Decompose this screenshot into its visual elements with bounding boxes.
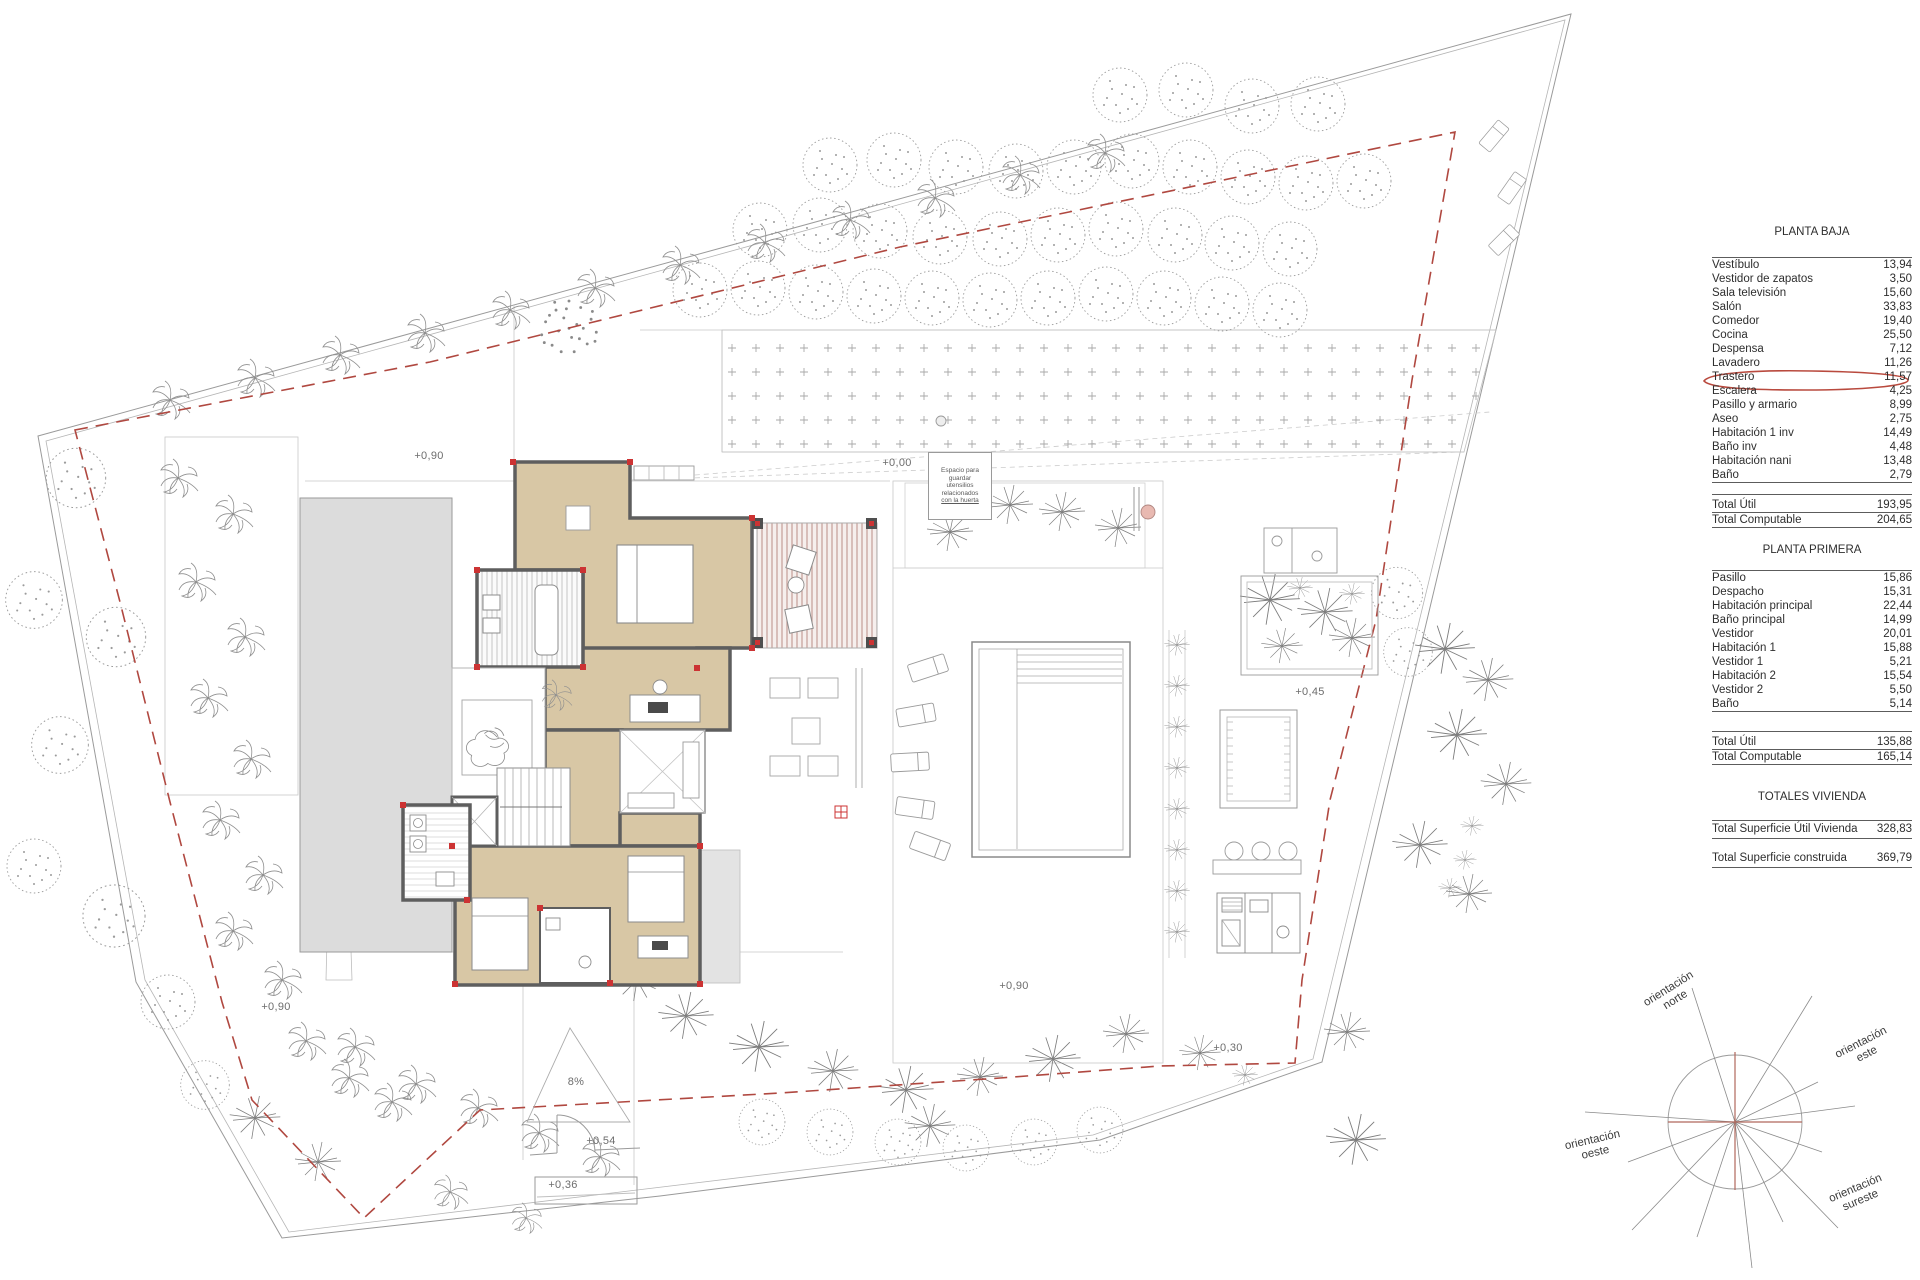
total-value: 369,79 <box>1877 850 1912 867</box>
table-row: Habitación 1 15,88 <box>1712 641 1912 655</box>
table-row: Escalera 4,25 <box>1712 384 1912 398</box>
planta-primera-totals: Total Útil 135,88 Total Computable 165,1… <box>1712 731 1912 765</box>
planta-primera-title: PLANTA PRIMERA <box>1712 543 1912 557</box>
total-row: Total Computable 165,14 <box>1712 750 1912 765</box>
garden-square <box>1241 576 1378 675</box>
room-area: 20,01 <box>1883 627 1912 641</box>
level-label-garden-east: +0,45 <box>1295 686 1324 698</box>
table-row: Vestidor 20,01 <box>1712 627 1912 641</box>
room-label: Salón <box>1712 300 1741 314</box>
room-area: 4,25 <box>1890 384 1912 398</box>
ramp <box>527 1028 630 1122</box>
total-row: Total Superficie Útil Vivienda 328,83 <box>1712 820 1912 839</box>
room-area: 25,50 <box>1883 328 1912 342</box>
note-line: relacionados <box>929 490 991 498</box>
room-area: 19,40 <box>1883 314 1912 328</box>
level-label-terrace-top: +0,90 <box>414 450 443 462</box>
room-label: Vestidor de zapatos <box>1712 272 1813 286</box>
table-row: Salón 33,83 <box>1712 300 1912 314</box>
laundry-room <box>403 805 470 900</box>
table-row: Baño principal 14,99 <box>1712 613 1912 627</box>
room-area: 15,86 <box>1883 571 1912 585</box>
table-row: Lavadero 11,26 <box>1712 356 1912 370</box>
table-row: Baño inv 4,48 <box>1712 440 1912 454</box>
total-value: 328,83 <box>1877 821 1912 838</box>
room-area: 11,57 <box>1884 370 1912 384</box>
room-label: Despensa <box>1712 342 1764 356</box>
table-planta-baja: PLANTA BAJA Vestíbulo 13,94 Vestidor de … <box>1712 225 1912 483</box>
site-plan-sheet: +0,90 +0,00 +0,90 +0,90 +0,45 +0,30 +0,5… <box>0 0 1920 1280</box>
outdoor-kitchen <box>1217 893 1300 953</box>
site-plan-drawing <box>0 0 1920 1280</box>
room-area: 5,50 <box>1890 683 1912 697</box>
room-area: 5,14 <box>1890 697 1912 711</box>
pool-loungers <box>891 654 951 861</box>
level-label-pool-deck: +0,90 <box>999 980 1028 992</box>
room-area: 11,26 <box>1884 356 1912 370</box>
table-row: Habitación nani 13,48 <box>1712 454 1912 468</box>
room-area: 15,54 <box>1883 669 1912 683</box>
room-label: Trastero <box>1712 370 1754 384</box>
planta-baja-title: PLANTA BAJA <box>1712 225 1912 239</box>
room-label: Vestidor 2 <box>1712 683 1763 697</box>
table-row: Despacho 15,31 <box>1712 585 1912 599</box>
total-value: 204,65 <box>1877 513 1912 527</box>
total-value: 193,95 <box>1877 498 1912 512</box>
note-line: utensilios <box>929 482 991 490</box>
room-label: Habitación 1 <box>1712 641 1776 655</box>
table-row: Habitación principal 22,44 <box>1712 599 1912 613</box>
room-label: Habitación nani <box>1712 454 1791 468</box>
room-label: Habitación 1 inv <box>1712 426 1794 440</box>
outdoor-lounge <box>770 668 862 788</box>
room-area: 33,83 <box>1883 300 1912 314</box>
room-label: Baño principal <box>1712 613 1785 627</box>
level-label-garden-south: +0,30 <box>1213 1042 1242 1054</box>
table-planta-primera: PLANTA PRIMERA Pasillo 15,86 Despacho 15… <box>1712 543 1912 712</box>
gate <box>530 1115 640 1204</box>
room-label: Lavadero <box>1712 356 1760 370</box>
table-totales-vivienda: TOTALES VIVIENDA Total Superficie Útil V… <box>1712 790 1912 868</box>
total-value: 165,14 <box>1877 750 1912 764</box>
level-label-entry: +0,00 <box>882 457 911 469</box>
planta-baja-totals: Total Útil 193,95 Total Computable 204,6… <box>1712 494 1912 528</box>
room-label: Cocina <box>1712 328 1748 342</box>
room-label: Vestíbulo <box>1712 258 1759 272</box>
table-row: Habitación 2 15,54 <box>1712 669 1912 683</box>
room-area: 2,79 <box>1890 468 1912 482</box>
room-label: Baño inv <box>1712 440 1757 454</box>
corner-chairs <box>1479 120 1527 256</box>
total-row: Total Útil 135,88 <box>1712 735 1912 750</box>
room-area: 8,99 <box>1890 398 1912 412</box>
room-label: Escalera <box>1712 384 1757 398</box>
total-label: Total Superficie Útil Vivienda <box>1712 821 1858 838</box>
room-label: Vestidor 1 <box>1712 655 1763 669</box>
shower-circle <box>1141 505 1155 519</box>
total-label: Total Superficie construida <box>1712 850 1847 867</box>
crop-field <box>722 330 1496 452</box>
room-label: Habitación 2 <box>1712 669 1776 683</box>
garden-note-box: Espacio paraguardarutensiliosrelacionado… <box>928 452 992 520</box>
covered-terrace <box>752 518 877 648</box>
total-label: Total Útil <box>1712 735 1756 749</box>
total-value: 135,88 <box>1877 735 1912 749</box>
note-line: con la huerta <box>929 497 991 505</box>
table-row: Vestidor 2 5,50 <box>1712 683 1912 697</box>
note-line: Espacio para <box>929 467 991 475</box>
room-area: 7,12 <box>1890 342 1912 356</box>
table-row: Vestíbulo 13,94 <box>1712 258 1912 272</box>
tool-shed <box>1264 528 1337 573</box>
room-label: Baño <box>1712 468 1739 482</box>
table-row: Baño 5,14 <box>1712 697 1912 711</box>
table-row: Sala televisión 15,60 <box>1712 286 1912 300</box>
outdoor-bar <box>1213 842 1301 874</box>
room-label: Vestidor <box>1712 627 1754 641</box>
level-label-gate-lower: +0,36 <box>548 1179 577 1191</box>
level-label-gate-upper: +0,54 <box>586 1135 615 1147</box>
ramp-slope-label: 8% <box>568 1076 585 1088</box>
table-row: Pasillo y armario 8,99 <box>1712 398 1912 412</box>
table-row: Baño 2,79 <box>1712 468 1912 482</box>
room-label: Comedor <box>1712 314 1759 328</box>
room-label: Sala televisión <box>1712 286 1786 300</box>
room-label: Aseo <box>1712 412 1738 426</box>
total-label: Total Computable <box>1712 513 1802 527</box>
table-row: Pasillo 15,86 <box>1712 571 1912 585</box>
table-row: Comedor 19,40 <box>1712 314 1912 328</box>
orchard-trees <box>673 63 1391 337</box>
table-row: Cocina 25,50 <box>1712 328 1912 342</box>
room-area: 22,44 <box>1883 599 1912 613</box>
room-label: Habitación principal <box>1712 599 1812 613</box>
table-row: Vestidor de zapatos 3,50 <box>1712 272 1912 286</box>
room-area: 4,48 <box>1890 440 1912 454</box>
totales-title: TOTALES VIVIENDA <box>1712 790 1912 804</box>
house-plan <box>300 459 877 987</box>
room-area: 14,99 <box>1883 613 1912 627</box>
room-area: 3,50 <box>1890 272 1912 286</box>
room-area: 13,48 <box>1883 454 1912 468</box>
table-row: Vestidor 1 5,21 <box>1712 655 1912 669</box>
grid-marker <box>835 806 847 818</box>
total-row: Total Superficie construida 369,79 <box>1712 850 1912 868</box>
room-area: 15,60 <box>1883 286 1912 300</box>
room-label: Baño <box>1712 697 1739 711</box>
table-row: Aseo 2,75 <box>1712 412 1912 426</box>
room-area: 5,21 <box>1890 655 1912 669</box>
table-row: Habitación 1 inv 14,49 <box>1712 426 1912 440</box>
vegetable-bed <box>1220 710 1297 808</box>
room-area: 15,88 <box>1883 641 1912 655</box>
living-room <box>620 730 705 813</box>
level-label-terrace-left: +0,90 <box>261 1001 290 1013</box>
table-row: Despensa 7,12 <box>1712 342 1912 356</box>
total-row: Total Útil 193,95 <box>1712 498 1912 513</box>
table-row: Trastero 11,57 <box>1712 370 1912 384</box>
room-label: Despacho <box>1712 585 1764 599</box>
room-area: 15,31 <box>1883 585 1912 599</box>
total-label: Total Computable <box>1712 750 1802 764</box>
room-area: 2,75 <box>1890 412 1912 426</box>
room-label: Pasillo y armario <box>1712 398 1797 412</box>
room-label: Pasillo <box>1712 571 1746 585</box>
note-line: guardar <box>929 475 991 483</box>
pool <box>972 642 1130 857</box>
room-area: 13,94 <box>1883 258 1912 272</box>
total-row: Total Computable 204,65 <box>1712 513 1912 528</box>
total-label: Total Útil <box>1712 498 1756 512</box>
room-area: 14,49 <box>1883 426 1912 440</box>
staircase <box>497 768 570 846</box>
master-bed <box>617 545 693 623</box>
